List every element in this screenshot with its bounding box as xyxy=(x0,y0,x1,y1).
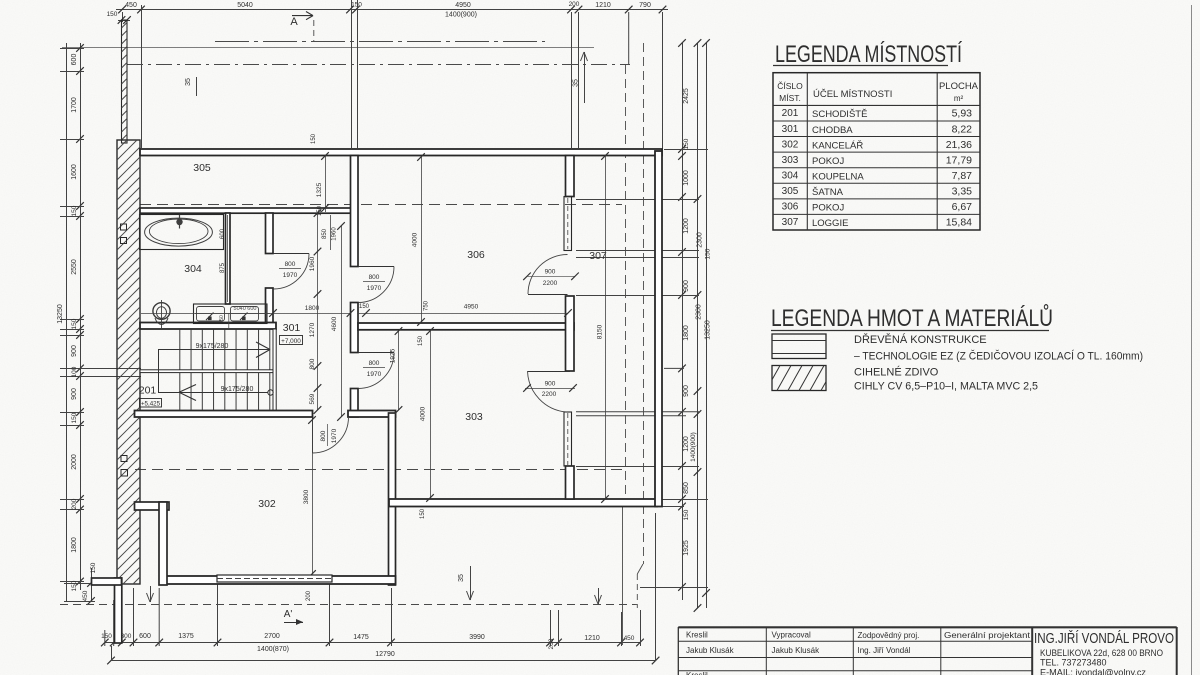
svg-text:875: 875 xyxy=(220,262,226,273)
svg-text:DŘEVĚNÁ KONSTRUKCE: DŘEVĚNÁ KONSTRUKCE xyxy=(854,333,987,346)
svg-text:450: 450 xyxy=(125,2,137,9)
svg-text:5040: 5040 xyxy=(237,2,253,9)
svg-text:1800: 1800 xyxy=(683,325,690,341)
svg-text:– TECHNOLOGIE EZ (Z ČEDIČO: – TECHNOLOGIE EZ (Z ČEDIČOVOU IZOLACÍ O … xyxy=(854,350,1143,363)
svg-text:4950: 4950 xyxy=(455,2,471,9)
svg-text:800: 800 xyxy=(285,261,296,268)
svg-text:+5,425: +5,425 xyxy=(141,401,161,408)
svg-text:450: 450 xyxy=(624,635,635,642)
svg-text:ČÍSLO: ČÍSLO xyxy=(777,81,803,91)
svg-text:1325: 1325 xyxy=(316,182,323,197)
svg-text:301: 301 xyxy=(283,322,301,334)
svg-text:150: 150 xyxy=(71,580,78,591)
svg-text:850: 850 xyxy=(683,482,690,494)
svg-text:35: 35 xyxy=(573,79,580,87)
svg-text:8150: 8150 xyxy=(597,324,604,339)
svg-text:CIHELNÉ ZDIVO: CIHELNÉ ZDIVO xyxy=(854,366,939,379)
svg-text:Kreslil: Kreslil xyxy=(686,631,708,640)
svg-text:m²: m² xyxy=(954,94,964,103)
svg-text:303: 303 xyxy=(782,155,799,166)
svg-text:200: 200 xyxy=(71,498,78,509)
svg-text:A': A' xyxy=(284,609,293,620)
svg-text:TEL. 737273480: TEL. 737273480 xyxy=(1040,658,1107,668)
svg-text:301: 301 xyxy=(782,124,799,135)
svg-text:1925: 1925 xyxy=(683,540,690,556)
svg-text:1270: 1270 xyxy=(309,322,316,337)
svg-text:600: 600 xyxy=(71,54,78,66)
svg-text:600: 600 xyxy=(139,633,151,640)
svg-text:150: 150 xyxy=(71,412,78,423)
svg-text:4600: 4600 xyxy=(331,316,338,331)
svg-text:150: 150 xyxy=(101,633,112,640)
svg-text:305: 305 xyxy=(193,162,211,174)
svg-text:304: 304 xyxy=(184,263,202,275)
svg-text:304: 304 xyxy=(782,171,799,182)
svg-text:1200: 1200 xyxy=(683,218,690,234)
svg-text:790: 790 xyxy=(639,2,651,9)
svg-text:1210: 1210 xyxy=(584,635,600,642)
svg-text:900: 900 xyxy=(545,269,556,276)
svg-text:KUBELIKOVA 22d, 628 00 BRN: KUBELIKOVA 22d, 628 00 BRNO xyxy=(1040,648,1163,658)
svg-text:150: 150 xyxy=(683,138,690,149)
svg-text:1970: 1970 xyxy=(283,272,298,279)
svg-text:2550: 2550 xyxy=(71,259,78,275)
svg-text:5,93: 5,93 xyxy=(952,108,973,120)
svg-text:1400(870): 1400(870) xyxy=(257,646,289,653)
svg-text:2300: 2300 xyxy=(696,304,703,320)
svg-text:1200: 1200 xyxy=(683,436,690,452)
svg-text:150: 150 xyxy=(420,508,426,519)
svg-text:E-MAIL: jvondal@volny.cz: E-MAIL: jvondal@volny.cz xyxy=(1040,668,1146,675)
svg-text:1000: 1000 xyxy=(683,170,690,186)
svg-text:CIHLY CV 6,5–P10–I, MALTA: CIHLY CV 6,5–P10–I, MALTA MVC 2,5 xyxy=(854,381,1038,393)
svg-text:569: 569 xyxy=(309,393,316,404)
svg-text:201: 201 xyxy=(782,108,799,119)
svg-text:Vypracoval: Vypracoval xyxy=(772,631,812,640)
svg-text:Jakub Klusák: Jakub Klusák xyxy=(772,646,821,655)
svg-text:800: 800 xyxy=(309,358,316,369)
svg-text:1210: 1210 xyxy=(595,2,611,9)
svg-text:9x175/280: 9x175/280 xyxy=(221,386,254,393)
svg-text:150: 150 xyxy=(107,11,118,18)
svg-text:302: 302 xyxy=(782,139,799,150)
svg-text:2700: 2700 xyxy=(264,633,280,640)
svg-text:900: 900 xyxy=(683,385,690,397)
svg-text:1475: 1475 xyxy=(353,634,369,641)
svg-text:600: 600 xyxy=(220,228,226,239)
svg-text:800: 800 xyxy=(369,274,380,281)
svg-text:303: 303 xyxy=(465,411,483,423)
svg-text:800: 800 xyxy=(369,360,380,367)
svg-text:15,84: 15,84 xyxy=(946,217,972,229)
svg-text:1800: 1800 xyxy=(71,537,78,553)
svg-text:LOGGIE: LOGGIE xyxy=(812,218,848,229)
svg-text:150: 150 xyxy=(311,133,317,144)
svg-text:200: 200 xyxy=(548,638,555,649)
svg-text:Jakub Klusák: Jakub Klusák xyxy=(686,646,735,655)
svg-text:2000: 2000 xyxy=(71,454,78,470)
svg-text:POKOJ: POKOJ xyxy=(812,203,844,214)
svg-text:1960: 1960 xyxy=(309,256,316,271)
svg-text:ING.JIŘÍ VONDÁL PROVO: ING.JIŘÍ VONDÁL PROVO xyxy=(1034,630,1174,647)
svg-text:MÍST.: MÍST. xyxy=(779,93,801,103)
svg-text:PLOCHA: PLOCHA xyxy=(939,81,979,92)
svg-text:ŠATNA: ŠATNA xyxy=(812,187,844,198)
svg-text:A: A xyxy=(290,16,298,28)
svg-text:Ing. Jiří Vondál: Ing. Jiří Vondál xyxy=(858,646,911,655)
svg-text:306: 306 xyxy=(782,202,799,213)
svg-text:150: 150 xyxy=(683,509,690,520)
svg-text:100: 100 xyxy=(71,366,78,377)
svg-text:1970: 1970 xyxy=(331,428,338,443)
svg-text:2200: 2200 xyxy=(542,391,557,398)
svg-text:5040 600: 5040 600 xyxy=(234,306,257,312)
svg-text:LEGENDA MÍSTNOSTÍ: LEGENDA MÍSTNOSTÍ xyxy=(775,41,962,68)
svg-text:CHODBA: CHODBA xyxy=(812,125,853,136)
svg-text:3990: 3990 xyxy=(469,634,485,641)
svg-text:306: 306 xyxy=(467,249,485,261)
svg-text:POKOJ: POKOJ xyxy=(812,156,844,167)
svg-text:150: 150 xyxy=(418,335,424,346)
svg-text:150: 150 xyxy=(90,562,97,573)
svg-text:1970: 1970 xyxy=(367,371,382,378)
svg-text:35: 35 xyxy=(458,574,465,582)
svg-text:Zodpovědný proj.: Zodpovědný proj. xyxy=(858,631,920,640)
svg-text:Generální projektant: Generální projektant xyxy=(944,631,1031,640)
svg-text:307: 307 xyxy=(782,217,799,228)
svg-text:200: 200 xyxy=(569,1,580,8)
svg-text:750: 750 xyxy=(424,300,430,311)
svg-text:12790: 12790 xyxy=(375,651,395,658)
svg-text:302: 302 xyxy=(258,498,276,510)
svg-text:3800: 3800 xyxy=(303,489,310,504)
svg-text:150: 150 xyxy=(351,2,362,9)
svg-text:9x175/280: 9x175/280 xyxy=(196,343,229,350)
svg-text:21,36: 21,36 xyxy=(946,139,972,151)
svg-text:35: 35 xyxy=(185,78,192,86)
svg-text:6,67: 6,67 xyxy=(952,201,973,213)
svg-text:ÚČEL MÍSTNOSTI: ÚČEL MÍSTNOSTI xyxy=(813,89,892,100)
svg-text:900: 900 xyxy=(71,345,78,357)
svg-text:900: 900 xyxy=(71,388,78,400)
svg-text:1400(900): 1400(900) xyxy=(445,12,477,19)
svg-text:3,35: 3,35 xyxy=(952,186,973,198)
svg-text:17,79: 17,79 xyxy=(946,154,972,166)
svg-text:8,22: 8,22 xyxy=(952,123,973,135)
svg-text:SCHODIŠTĚ: SCHODIŠTĚ xyxy=(812,109,867,120)
svg-text:200: 200 xyxy=(306,590,312,601)
svg-text:1925: 1925 xyxy=(390,348,397,363)
svg-text:KOUPELNA: KOUPELNA xyxy=(812,172,864,183)
svg-text:150: 150 xyxy=(705,248,712,259)
svg-text:1600: 1600 xyxy=(71,164,78,180)
svg-text:LEGENDA HMOT A MATERIÁLŮ: LEGENDA HMOT A MATERIÁLŮ xyxy=(771,303,1053,332)
svg-text:201: 201 xyxy=(139,385,157,397)
svg-text:13250: 13250 xyxy=(705,320,712,340)
svg-text:Kreslil: Kreslil xyxy=(686,671,708,675)
svg-text:4000: 4000 xyxy=(412,232,419,247)
svg-text:307: 307 xyxy=(589,250,607,262)
svg-text:4950: 4950 xyxy=(464,304,479,311)
svg-text:50: 50 xyxy=(219,315,225,321)
svg-text:7,87: 7,87 xyxy=(952,170,973,182)
svg-text:900: 900 xyxy=(545,381,556,388)
svg-text:4000: 4000 xyxy=(420,406,427,421)
svg-text:+7,000: +7,000 xyxy=(281,338,301,345)
svg-text:1970: 1970 xyxy=(367,285,382,292)
svg-text:2425: 2425 xyxy=(683,88,690,104)
svg-text:1700: 1700 xyxy=(71,97,78,113)
svg-text:150: 150 xyxy=(71,318,78,329)
svg-text:KANCELÁŘ: KANCELÁŘ xyxy=(812,140,863,151)
svg-text:900: 900 xyxy=(683,280,690,292)
svg-text:305: 305 xyxy=(782,186,799,197)
svg-text:1375: 1375 xyxy=(178,633,194,640)
svg-text:2200: 2200 xyxy=(543,280,558,287)
svg-text:450: 450 xyxy=(82,590,89,601)
svg-text:13250: 13250 xyxy=(57,304,64,324)
svg-text:2300: 2300 xyxy=(697,232,704,248)
svg-text:1960: 1960 xyxy=(332,227,338,241)
svg-text:1400(900): 1400(900) xyxy=(690,432,697,462)
svg-text:150: 150 xyxy=(71,205,78,216)
svg-text:150: 150 xyxy=(359,304,370,310)
svg-text:800: 800 xyxy=(320,430,327,441)
svg-text:850: 850 xyxy=(322,228,328,239)
